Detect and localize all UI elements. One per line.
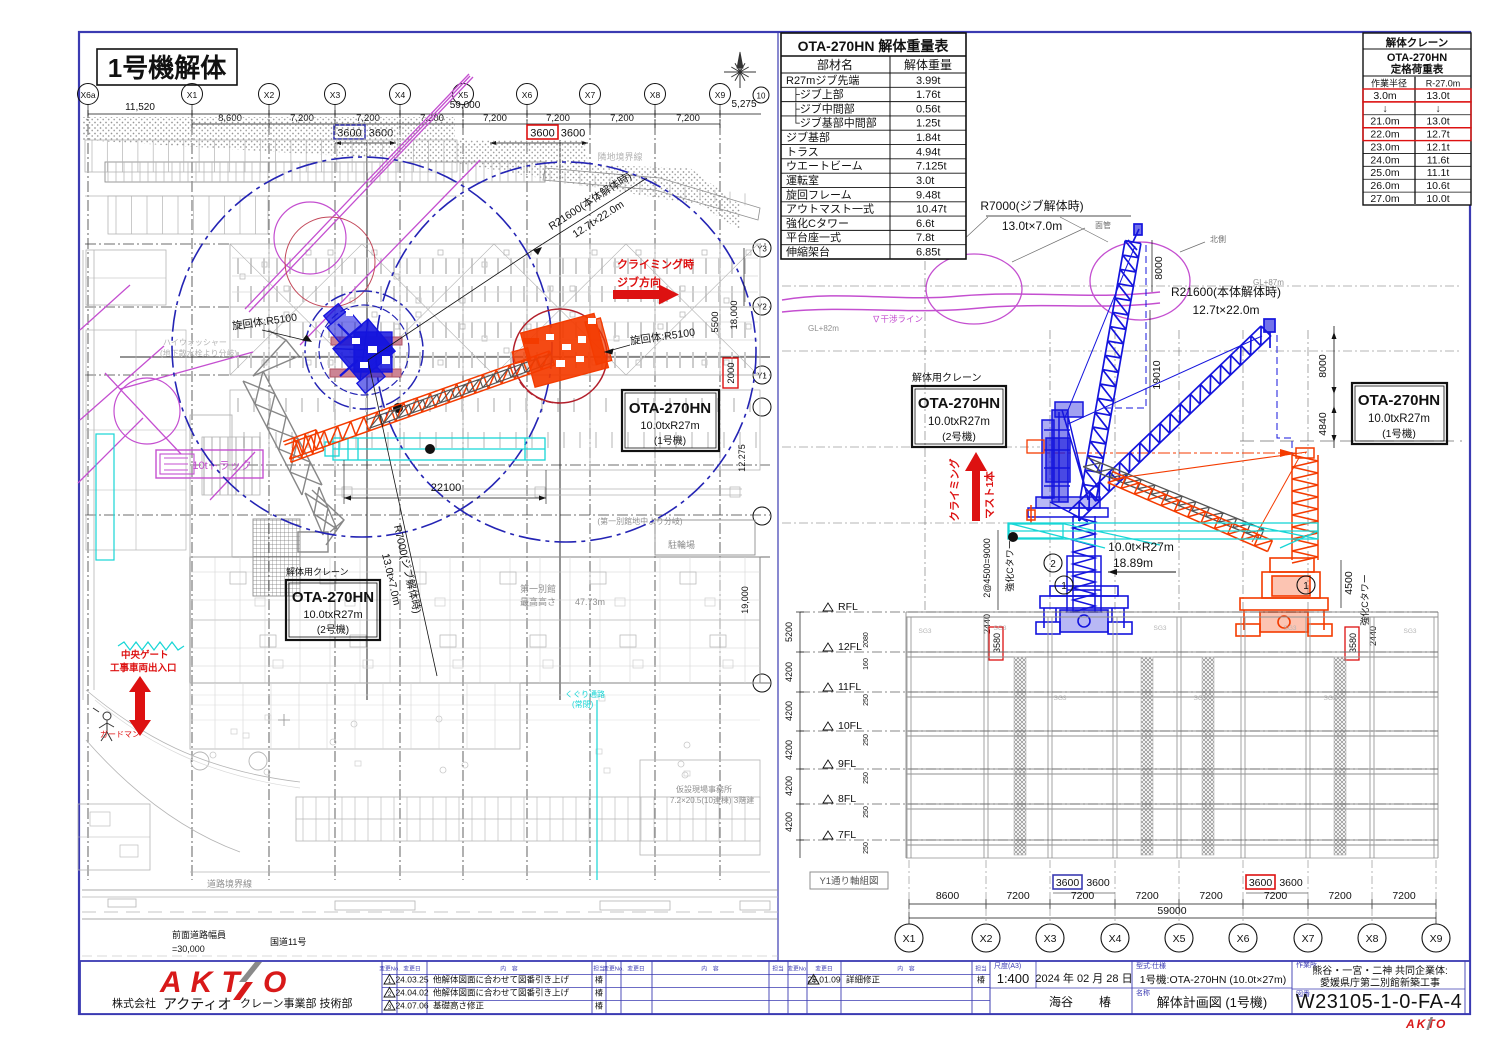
svg-text:25.0m: 25.0m <box>1370 167 1399 179</box>
svg-text:X9: X9 <box>715 90 726 100</box>
svg-text:10: 10 <box>757 92 766 101</box>
svg-text:1: 1 <box>1061 581 1067 592</box>
svg-text:2024 年 02 月 28 日: 2024 年 02 月 28 日 <box>1035 971 1132 985</box>
svg-text:X2: X2 <box>264 90 275 100</box>
svg-text:担当: 担当 <box>772 965 784 973</box>
svg-text:10tトラック: 10tトラック <box>192 459 251 472</box>
svg-text:22100: 22100 <box>431 482 462 494</box>
svg-text:2000: 2000 <box>726 362 737 383</box>
svg-text:11.1t: 11.1t <box>1427 167 1450 179</box>
svg-text:3580: 3580 <box>992 633 1002 653</box>
svg-text:19,000: 19,000 <box>740 586 750 614</box>
svg-text:11,520: 11,520 <box>125 102 155 113</box>
svg-text:SG3: SG3 <box>1283 625 1296 632</box>
svg-text:24.03.25: 24.03.25 <box>395 975 428 985</box>
svg-text:7,200: 7,200 <box>546 113 570 124</box>
svg-text:変更No.: 変更No. <box>379 965 400 973</box>
svg-text:基礎高さ修正: 基礎高さ修正 <box>433 1001 485 1011</box>
svg-text:3580: 3580 <box>1348 633 1358 653</box>
svg-text:2: 2 <box>1050 559 1056 570</box>
svg-text:O: O <box>1436 1017 1446 1031</box>
svg-text:=30,000: =30,000 <box>172 944 205 954</box>
svg-text:中央ゲート: 中央ゲート <box>121 649 169 661</box>
svg-text:SG3: SG3 <box>918 628 931 635</box>
svg-text:Y3: Y3 <box>757 245 767 254</box>
svg-text:SG3: SG3 <box>993 625 1006 632</box>
svg-text:7,200: 7,200 <box>676 113 700 124</box>
svg-text:10.0txR27m: 10.0txR27m <box>1368 413 1430 425</box>
svg-text:13.0t: 13.0t <box>1426 116 1449 128</box>
svg-text:強化Cタワー: 強化Cタワー <box>786 216 849 230</box>
svg-text:3600: 3600 <box>530 128 554 140</box>
svg-text:尺度(A3): 尺度(A3) <box>994 961 1021 970</box>
svg-text:10.0txR27m: 10.0txR27m <box>303 609 362 621</box>
svg-text:道路境界線: 道路境界線 <box>207 878 252 889</box>
svg-text:Y1通り軸組図: Y1通り軸組図 <box>819 875 878 887</box>
svg-text:2080: 2080 <box>863 632 870 648</box>
svg-text:椿: 椿 <box>595 1001 603 1011</box>
svg-text:3600: 3600 <box>1249 877 1273 889</box>
svg-text:2@4500=9000: 2@4500=9000 <box>982 538 992 597</box>
svg-text:1号機解体: 1号機解体 <box>108 53 227 83</box>
svg-text:3600: 3600 <box>1279 877 1303 889</box>
svg-text:10.0t×R27m: 10.0t×R27m <box>1108 540 1174 554</box>
svg-text:4200: 4200 <box>784 776 794 796</box>
svg-text:250: 250 <box>863 734 870 746</box>
svg-text:9FL: 9FL <box>838 758 856 770</box>
svg-text:クライミング: クライミング <box>948 458 961 521</box>
svg-text:12.7t: 12.7t <box>1426 129 1449 141</box>
svg-text:X6a: X6a <box>80 90 95 100</box>
svg-text:詳細修正: 詳細修正 <box>846 975 881 985</box>
svg-text:59,000: 59,000 <box>450 100 481 111</box>
svg-text:強化Cタワー: 強化Cタワー <box>1359 574 1370 626</box>
svg-text:5,275: 5,275 <box>731 99 756 110</box>
svg-text:47.73m: 47.73m <box>575 597 605 607</box>
svg-text:4200: 4200 <box>784 812 794 832</box>
svg-text:SG3: SG3 <box>1053 695 1066 702</box>
svg-text:3600: 3600 <box>561 128 585 140</box>
svg-text:SG3: SG3 <box>1153 625 1166 632</box>
svg-text:変更日: 変更日 <box>627 965 644 973</box>
svg-text:└ジブ基部中間部: └ジブ基部中間部 <box>792 116 877 130</box>
svg-text:4200: 4200 <box>784 740 794 760</box>
svg-text:4500: 4500 <box>1343 571 1355 595</box>
svg-text:13.0t: 13.0t <box>1426 90 1449 102</box>
svg-text:27.0m: 27.0m <box>1370 193 1399 205</box>
svg-text:X1: X1 <box>903 933 916 945</box>
svg-text:内 容: 内 容 <box>701 965 719 973</box>
svg-text:定格荷重表: 定格荷重表 <box>1390 63 1444 76</box>
svg-text:X4: X4 <box>395 90 406 100</box>
svg-text:1.84t: 1.84t <box>916 132 940 144</box>
svg-text:7FL: 7FL <box>838 829 856 841</box>
svg-text:8600: 8600 <box>936 890 960 902</box>
svg-text:担当: 担当 <box>975 965 987 973</box>
svg-text:伸縮架台: 伸縮架台 <box>786 245 830 259</box>
svg-text:変更日: 変更日 <box>815 965 832 973</box>
svg-text:内 容: 内 容 <box>500 965 518 973</box>
svg-text:↓: ↓ <box>1435 103 1440 115</box>
svg-text:7200: 7200 <box>1006 890 1030 902</box>
svg-text:ジブ基部: ジブ基部 <box>786 130 830 144</box>
svg-text:1.76t: 1.76t <box>916 89 940 101</box>
svg-text:解体用クレーン: 解体用クレーン <box>286 566 349 577</box>
svg-text:Y1: Y1 <box>757 372 767 381</box>
svg-text:R27mジブ先端: R27mジブ先端 <box>786 73 859 87</box>
svg-text:4200: 4200 <box>784 662 794 682</box>
svg-text:3600: 3600 <box>1056 877 1080 889</box>
svg-text:3.0t: 3.0t <box>916 175 934 187</box>
svg-text:↓: ↓ <box>1382 103 1387 115</box>
svg-text:クライミング時: クライミング時 <box>617 257 694 271</box>
svg-text:R7000(ジブ解体時): R7000(ジブ解体時) <box>980 198 1083 213</box>
svg-text:11.6t: 11.6t <box>1427 154 1450 166</box>
svg-text:X3: X3 <box>330 90 341 100</box>
svg-text:海谷: 海谷 <box>1049 994 1073 1009</box>
svg-text:7200: 7200 <box>1135 890 1159 902</box>
svg-text:X8: X8 <box>1366 933 1379 945</box>
svg-text:椿: 椿 <box>977 975 985 985</box>
svg-text:ウエートビーム: ウエートビーム <box>786 160 863 173</box>
svg-text:12.1t: 12.1t <box>1426 141 1449 153</box>
svg-text:(1号機): (1号機) <box>654 434 686 447</box>
svg-text:3.99t: 3.99t <box>916 75 940 87</box>
svg-text:運転室: 運転室 <box>786 173 819 187</box>
svg-text:11FL: 11FL <box>838 681 861 693</box>
svg-text:7200: 7200 <box>1264 890 1288 902</box>
svg-text:25.01.09: 25.01.09 <box>807 975 840 985</box>
svg-text:RFL: RFL <box>838 601 858 613</box>
svg-text:クレーン事業部 技術部: クレーン事業部 技術部 <box>240 996 353 1010</box>
svg-text:マスト1本: マスト1本 <box>983 471 996 519</box>
svg-text:名称: 名称 <box>1136 988 1150 997</box>
svg-text:X5: X5 <box>1173 933 1186 945</box>
svg-text:2440: 2440 <box>1368 626 1378 646</box>
svg-text:X7: X7 <box>1302 933 1315 945</box>
svg-text:4840: 4840 <box>1317 412 1329 436</box>
svg-text:10.0t: 10.0t <box>1426 193 1449 205</box>
svg-text:7.125t: 7.125t <box>916 161 947 173</box>
svg-text:椿: 椿 <box>595 975 603 985</box>
svg-text:X1: X1 <box>187 90 198 100</box>
svg-text:26.0m: 26.0m <box>1370 180 1399 192</box>
svg-text:9.48t: 9.48t <box>916 189 940 201</box>
svg-text:OTA-270HN: OTA-270HN <box>629 400 711 417</box>
svg-text:椿: 椿 <box>1099 995 1111 1009</box>
svg-text:X4: X4 <box>1109 933 1122 945</box>
svg-text:7200: 7200 <box>1328 890 1352 902</box>
svg-text:工事車両出入口: 工事車両出入口 <box>110 662 177 674</box>
svg-text:21.0m: 21.0m <box>1370 116 1399 128</box>
svg-text:OTA-270HN: OTA-270HN <box>1387 52 1447 64</box>
svg-text:250: 250 <box>863 806 870 818</box>
svg-text:10FL: 10FL <box>838 720 862 732</box>
svg-text:X8: X8 <box>650 90 661 100</box>
svg-text:隣地境界線: 隣地境界線 <box>597 151 642 162</box>
svg-text:X9: X9 <box>1430 933 1443 945</box>
svg-text:7,200: 7,200 <box>610 113 634 124</box>
svg-text:1.25t: 1.25t <box>916 118 940 130</box>
svg-text:ガードマン: ガードマン <box>100 729 140 739</box>
svg-text:SG3: SG3 <box>1403 628 1416 635</box>
svg-text:250: 250 <box>863 694 870 706</box>
svg-text:仮設現場事務所: 仮設現場事務所 <box>676 784 732 794</box>
svg-text:X6: X6 <box>522 90 533 100</box>
svg-text:解体用クレーン: 解体用クレーン <box>912 371 982 384</box>
svg-text:解体計画図 (1号機): 解体計画図 (1号機) <box>1157 995 1268 1010</box>
svg-text:強化Cタワー: 強化Cタワー <box>1004 540 1015 592</box>
svg-text:OTA-270HN: OTA-270HN <box>1358 392 1440 409</box>
svg-text:18.89m: 18.89m <box>1113 556 1153 570</box>
svg-text:160: 160 <box>863 658 870 670</box>
svg-text:7.2×20.5(10連棟) 3階建: 7.2×20.5(10連棟) 3階建 <box>670 795 754 805</box>
svg-text:24.07.06: 24.07.06 <box>395 1001 428 1011</box>
svg-text:解体重量: 解体重量 <box>904 58 952 72</box>
svg-text:10.6t: 10.6t <box>1426 180 1449 192</box>
svg-text:5500: 5500 <box>710 311 721 332</box>
svg-text:W23105-1-0-FA-4: W23105-1-0-FA-4 <box>1296 991 1462 1013</box>
svg-text:アウトマスト一式: アウトマスト一式 <box>786 203 874 216</box>
svg-text:作業半径: 作業半径 <box>1371 78 1407 89</box>
svg-text:株式会社: 株式会社 <box>112 996 156 1010</box>
svg-text:1: 1 <box>1303 581 1309 592</box>
svg-text:第一別館: 第一別館 <box>520 583 556 594</box>
svg-text:OTA-270HN: OTA-270HN <box>292 589 374 606</box>
svg-text:SG3: SG3 <box>1193 695 1206 702</box>
svg-text:12.275: 12.275 <box>737 444 747 472</box>
svg-text:R21600(本体解体時): R21600(本体解体時) <box>1171 285 1281 299</box>
svg-text:OTA-270HN: OTA-270HN <box>918 395 1000 412</box>
svg-text:18,000: 18,000 <box>729 300 740 329</box>
svg-text:13.0t×7.0m: 13.0t×7.0m <box>1002 219 1062 233</box>
svg-text:面管: 面管 <box>1095 220 1111 230</box>
svg-text:愛媛県庁第二別館新築工事: 愛媛県庁第二別館新築工事 <box>1320 976 1440 989</box>
svg-text:250: 250 <box>863 772 870 784</box>
svg-text:変更No.: 変更No. <box>603 965 624 973</box>
svg-text:8FL: 8FL <box>838 793 856 805</box>
svg-text:X3: X3 <box>1044 933 1057 945</box>
svg-text:3600: 3600 <box>1086 877 1110 889</box>
svg-text:X7: X7 <box>585 90 596 100</box>
svg-text:旋回フレーム: 旋回フレーム <box>786 187 852 201</box>
svg-text:3.0m: 3.0m <box>1373 90 1397 102</box>
svg-text:内 容: 内 容 <box>897 965 915 973</box>
svg-text:7200: 7200 <box>1199 890 1223 902</box>
svg-text:解体クレーン: 解体クレーン <box>1385 36 1448 49</box>
svg-text:くぐり通路: くぐり通路 <box>565 689 605 699</box>
svg-text:5200: 5200 <box>784 622 794 642</box>
svg-text:7.8t: 7.8t <box>916 232 934 244</box>
svg-text:4200: 4200 <box>784 701 794 721</box>
svg-text:7200: 7200 <box>1071 890 1095 902</box>
svg-text:GL+82m: GL+82m <box>808 324 839 333</box>
svg-text:10.0txR27m: 10.0txR27m <box>640 420 699 432</box>
svg-text:駐輪場: 駐輪場 <box>668 539 695 550</box>
svg-text:1号機:OTA-270HN (10.0t×27m): 1号機:OTA-270HN (10.0t×27m) <box>1140 973 1287 986</box>
svg-text:23.0m: 23.0m <box>1370 141 1399 153</box>
svg-text:最高高さ: 最高高さ <box>520 596 556 607</box>
svg-text:7,200: 7,200 <box>483 113 507 124</box>
svg-text:AKT: AKT <box>159 966 249 999</box>
svg-text:OTA-270HN 解体重量表: OTA-270HN 解体重量表 <box>798 38 950 54</box>
svg-text:トラス: トラス <box>786 146 819 158</box>
svg-text:国道11号: 国道11号 <box>270 936 306 947</box>
svg-text:SG3: SG3 <box>1323 695 1336 702</box>
svg-text:12FL: 12FL <box>838 641 862 653</box>
svg-text:1:400: 1:400 <box>997 971 1030 986</box>
svg-text:(常閉): (常閉) <box>572 700 594 709</box>
svg-text:10.47t: 10.47t <box>916 204 947 216</box>
svg-text:X6: X6 <box>1237 933 1250 945</box>
svg-text:0.56t: 0.56t <box>916 103 940 115</box>
svg-text:7200: 7200 <box>1392 890 1416 902</box>
svg-text:アクティオ: アクティオ <box>163 996 231 1012</box>
svg-text:24.0m: 24.0m <box>1370 154 1399 166</box>
svg-text:8000: 8000 <box>1317 354 1329 378</box>
svg-text:4.94t: 4.94t <box>916 146 940 158</box>
svg-text:6.85t: 6.85t <box>916 247 940 259</box>
svg-text:∇干渉ライン: ∇干渉ライン <box>872 314 923 324</box>
svg-text:├ジブ中間部: ├ジブ中間部 <box>792 101 855 116</box>
svg-text:250: 250 <box>863 842 870 854</box>
svg-text:(2号機): (2号機) <box>942 430 976 443</box>
svg-text:10.0txR27m: 10.0txR27m <box>928 416 990 428</box>
svg-text:(第一別館地中より分岐): (第一別館地中より分岐) <box>597 516 683 526</box>
svg-text:(1号機): (1号機) <box>1382 427 1416 440</box>
svg-text:型式:仕様: 型式:仕様 <box>1136 961 1166 970</box>
svg-text:他解体図面に合わせて図番引き上げ: 他解体図面に合わせて図番引き上げ <box>433 988 570 998</box>
svg-text:平台座一式: 平台座一式 <box>786 230 841 244</box>
svg-text:変更No.: 変更No. <box>787 965 808 973</box>
svg-text:8000: 8000 <box>1153 256 1165 280</box>
svg-text:6.6t: 6.6t <box>916 218 934 230</box>
svg-text:24.04.02: 24.04.02 <box>395 988 428 998</box>
svg-text:12.7t×22.0m: 12.7t×22.0m <box>1192 303 1259 317</box>
svg-text:部材名: 部材名 <box>817 57 853 72</box>
svg-text:O: O <box>263 966 286 999</box>
svg-text:椿: 椿 <box>595 988 603 998</box>
svg-text:北側: 北側 <box>1210 234 1226 244</box>
svg-text:X2: X2 <box>980 933 993 945</box>
svg-text:前面道路幅員: 前面道路幅員 <box>172 929 226 940</box>
svg-text:(2号機): (2号機) <box>317 623 349 636</box>
svg-text:R-27.0m: R-27.0m <box>1426 79 1461 89</box>
svg-text:22.0m: 22.0m <box>1370 129 1399 141</box>
svg-text:他解体図面に合わせて図番引き上げ: 他解体図面に合わせて図番引き上げ <box>433 975 570 985</box>
svg-text:熊谷・一宮・二神 共同企業体:: 熊谷・一宮・二神 共同企業体: <box>1312 964 1448 977</box>
svg-text:59000: 59000 <box>1157 905 1186 917</box>
svg-text:変更日: 変更日 <box>403 965 420 973</box>
svg-text:ジブ方向: ジブ方向 <box>617 275 661 289</box>
svg-text:├ジブ上部: ├ジブ上部 <box>792 87 844 102</box>
